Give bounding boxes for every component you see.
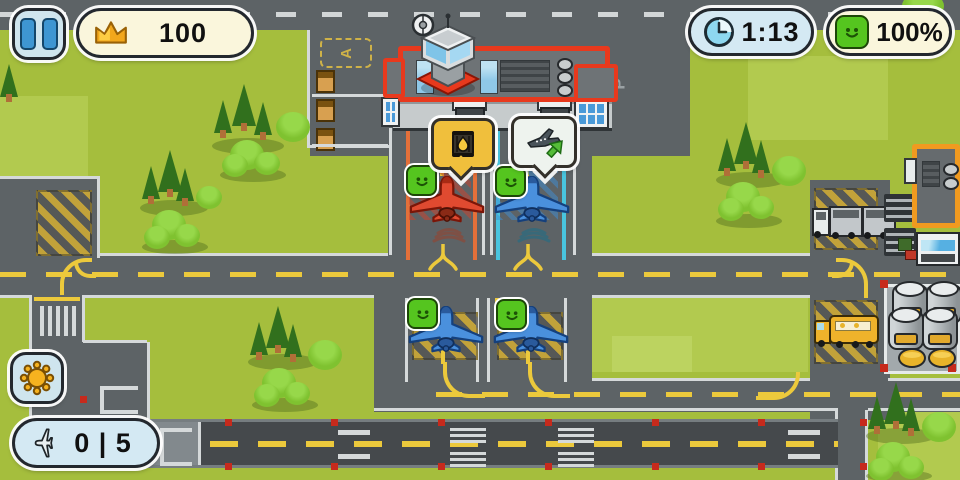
tank-dot (854, 323, 859, 328)
pause-button[interactable] (12, 8, 66, 60)
stand-area-label: A (320, 38, 372, 68)
plane-icon (27, 426, 61, 460)
hold-stripe (64, 306, 68, 336)
exhaust-waves (514, 226, 554, 243)
game-map: A P (0, 0, 960, 480)
office-glass (921, 240, 955, 251)
pad-edge (0, 176, 100, 179)
exhaust-waves (429, 226, 469, 243)
lead-in-fork (510, 244, 546, 271)
tree (176, 168, 194, 201)
lane-edge (487, 298, 490, 382)
bush (196, 186, 222, 209)
bush (772, 156, 806, 186)
tree (752, 140, 770, 173)
cab-window (817, 323, 824, 330)
fuel-truck[interactable] (814, 312, 878, 348)
office-base (921, 254, 955, 262)
edge-marker (758, 463, 765, 470)
edge-marker (438, 419, 445, 426)
wheel (848, 232, 855, 239)
threshold-mark (160, 428, 192, 432)
tree (868, 396, 886, 429)
taxiway-centerline (0, 272, 960, 277)
edge-marker (545, 419, 552, 426)
threshold-edge (198, 422, 201, 468)
tree (284, 324, 302, 357)
happy-face-badge (495, 166, 526, 197)
edge-marker (860, 463, 867, 470)
threshold-mark (160, 428, 164, 466)
edge-marker (652, 463, 659, 470)
edge-marker (225, 419, 232, 426)
runway-mark (558, 458, 594, 461)
road-edge (82, 295, 85, 342)
wheel (852, 341, 859, 348)
tree (250, 322, 268, 355)
runway-mark (450, 464, 486, 467)
grass-patch (612, 336, 692, 372)
road-edge (147, 342, 150, 420)
hold-stripe (40, 306, 44, 336)
edge-marker (545, 463, 552, 470)
runway-mark (558, 452, 594, 455)
runway-mark (450, 434, 486, 437)
pad-edge (97, 176, 100, 258)
oil-barrel-icon (450, 129, 476, 159)
bush (718, 198, 744, 221)
taxiway-edge (374, 408, 838, 411)
bush (308, 340, 342, 370)
taxiway-edge (0, 295, 32, 298)
hold-stripe (72, 306, 76, 336)
bush (174, 224, 200, 247)
taxiway-edge (83, 295, 374, 298)
tree (902, 398, 920, 431)
money-display: 100 (76, 8, 254, 58)
hold-stripe (48, 306, 52, 336)
pad-marking (100, 386, 138, 390)
timer-value: 1:13 (741, 17, 799, 48)
gate-glass-right (574, 99, 609, 129)
luggage-cart (316, 99, 335, 122)
flight-counter-value: 0 | 5 (61, 428, 145, 459)
luggage-cart (316, 128, 335, 151)
bush (254, 152, 280, 175)
taxiway-edge (592, 253, 810, 256)
wheel (836, 341, 843, 348)
edge-marker (438, 463, 445, 470)
edge-marker (225, 463, 232, 470)
wheel (864, 232, 871, 239)
runway-edge (25, 465, 838, 468)
edge-marker (80, 396, 87, 403)
terminal-roof-vents (500, 60, 550, 92)
runway-centerline (210, 441, 838, 447)
taxiway-edge (100, 253, 388, 256)
money-value: 100 (129, 18, 237, 49)
bush (276, 112, 310, 142)
parking-line (312, 144, 388, 147)
tree (0, 64, 18, 97)
loading-dock (904, 158, 917, 184)
luggage-cart (316, 70, 335, 93)
fuel-tank (922, 310, 958, 350)
edge-marker (758, 419, 765, 426)
gate-glass-left (381, 97, 400, 127)
wheel (814, 231, 821, 238)
grass-patch (748, 56, 888, 140)
tank-dot (840, 323, 845, 328)
runway-mark (338, 430, 370, 435)
depot-corner-marker (880, 280, 888, 288)
lead-in-fork (425, 244, 461, 271)
happiness-display: 100% (826, 8, 952, 56)
warehouse-vents (922, 161, 940, 187)
office-building (916, 232, 960, 266)
runway-mark (450, 458, 486, 461)
happiness-value: 100% (876, 17, 943, 48)
threshold-mark (160, 462, 192, 466)
fuel-pump (928, 348, 956, 368)
hold-stripe (56, 306, 60, 336)
roof-vent (557, 84, 573, 97)
tree (254, 102, 272, 135)
wheel (866, 341, 873, 348)
runway-mark (450, 428, 486, 431)
taxiway-edge (592, 295, 810, 298)
bush (284, 382, 310, 405)
runway-mark (558, 428, 594, 431)
bush (222, 154, 248, 177)
depot-corner-marker (880, 364, 888, 372)
pause-icon (20, 18, 36, 50)
bush (868, 458, 894, 480)
crown-icon (93, 19, 129, 47)
bush (748, 196, 774, 219)
edge-marker (860, 419, 867, 426)
tree (718, 138, 736, 171)
runway-mark (558, 434, 594, 437)
pause-icon (42, 18, 58, 50)
sun-icon (19, 360, 55, 396)
lane-edge (389, 128, 392, 255)
timer-display: 1:13 (688, 8, 814, 56)
bush (922, 412, 956, 442)
edge-marker (331, 419, 338, 426)
tree (142, 166, 160, 199)
runway-mark (788, 430, 820, 435)
runway-mark (788, 454, 820, 459)
cargo-warehouse[interactable] (912, 144, 960, 228)
roof-vent (557, 58, 573, 71)
wheel (832, 232, 839, 239)
runway-hold-pad (83, 342, 150, 420)
grass-patch (0, 96, 88, 186)
holding-area-hatch (36, 190, 92, 256)
bush (144, 226, 170, 249)
happy-face-badge (406, 165, 437, 196)
roof-vent (557, 71, 573, 84)
runway-mark (450, 452, 486, 455)
taxiway-edge (888, 378, 960, 381)
runway-mark (338, 454, 370, 459)
roof-vent (943, 177, 959, 190)
edge-marker (331, 463, 338, 470)
control-tower[interactable] (402, 10, 488, 96)
clock-icon (702, 15, 736, 49)
bush (254, 384, 280, 407)
tree (232, 84, 256, 126)
runway-mark (450, 440, 486, 443)
terminal-wing (574, 64, 618, 102)
roof-vent (943, 163, 959, 176)
takeoff-request-bubble[interactable] (511, 116, 577, 168)
fuel-tank (888, 310, 924, 350)
weather-button[interactable] (10, 352, 64, 404)
bush (898, 456, 924, 479)
edge-marker (652, 419, 659, 426)
parking-line (312, 94, 388, 97)
tree (214, 100, 232, 133)
fuel-pump (898, 348, 926, 368)
happy-face-badge (496, 299, 527, 330)
wheel (818, 340, 825, 347)
runway-mark (558, 440, 594, 443)
plane-takeoff-icon (525, 126, 563, 158)
runway-mark (558, 464, 594, 467)
fuel-request-bubble[interactable] (431, 118, 495, 170)
pad-marking (100, 410, 138, 414)
happy-face-badge (407, 298, 438, 329)
road-edge (83, 340, 147, 343)
flight-counter: 0 | 5 (12, 418, 160, 468)
happy-face-icon (835, 15, 869, 49)
stop-bar (34, 297, 80, 301)
